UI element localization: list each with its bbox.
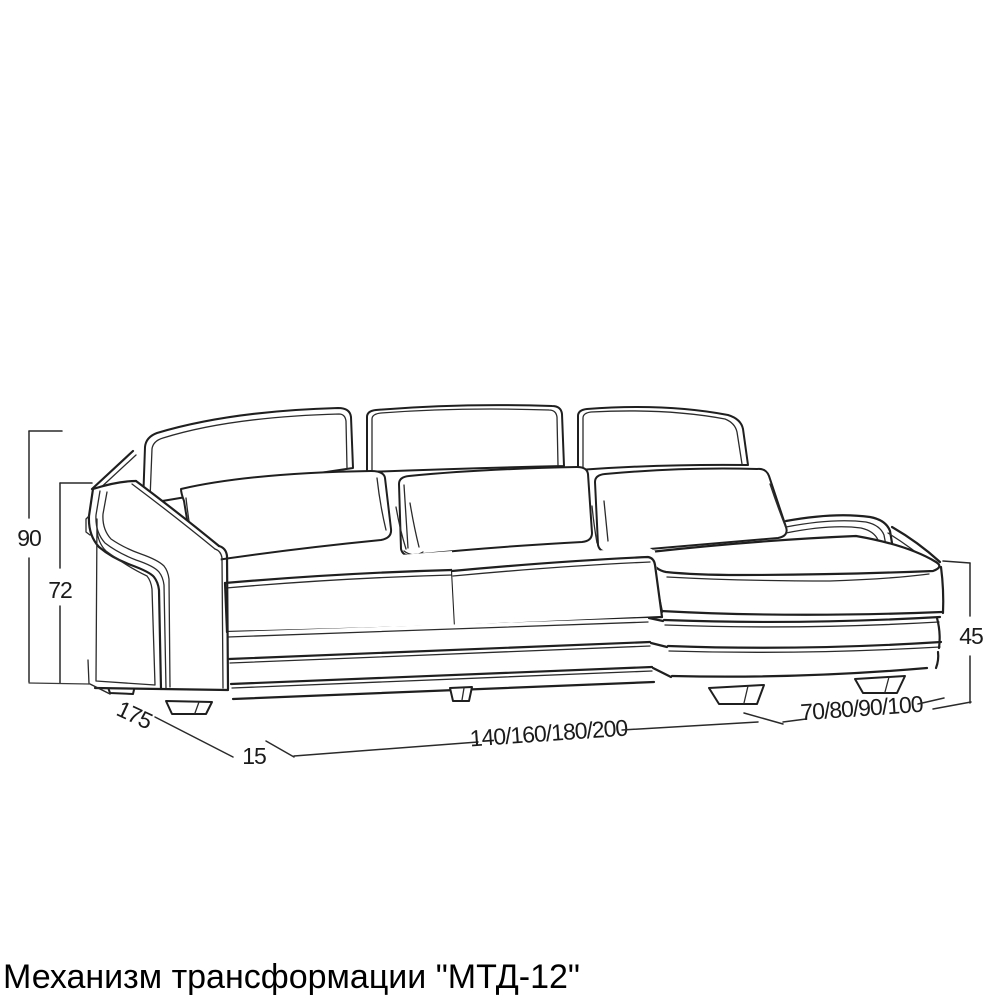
seat-height-value: 72 xyxy=(48,577,72,603)
dimension-seat-height: 72 xyxy=(48,483,92,683)
pillow-middle xyxy=(399,467,592,555)
chaise xyxy=(650,536,944,677)
foot-middle xyxy=(450,687,472,701)
back-cushion-middle xyxy=(367,405,564,472)
dimension-chaise-widths: 70/80/90/100 xyxy=(783,691,971,725)
dimension-seat-widths: 140/160/180/200 xyxy=(294,713,783,756)
dimension-back-height: 90 xyxy=(17,431,62,682)
depth-value: 175 xyxy=(113,695,156,734)
dimension-chaise-height: 45 xyxy=(943,561,983,703)
seat-widths-value: 140/160/180/200 xyxy=(469,715,628,752)
dimension-depth: 175 xyxy=(90,684,233,757)
sofa-illustration: 90 72 175 15 140/160/180/200 xyxy=(0,0,1000,1000)
figure-title: Механизм трансформации "МТД-12" xyxy=(3,960,580,994)
back-cushion-right xyxy=(578,407,748,470)
foot-chaise-right xyxy=(855,676,905,693)
dimension-arm-width: 15 xyxy=(242,741,294,769)
sofa-dimension-diagram: 90 72 175 15 140/160/180/200 xyxy=(0,0,1000,1000)
arm-width-value: 15 xyxy=(242,743,266,769)
chaise-height-value: 45 xyxy=(959,623,983,649)
back-height-value: 90 xyxy=(17,525,41,551)
foot-front-left xyxy=(166,701,212,714)
foot-chaise-left xyxy=(709,685,764,704)
sofa-base xyxy=(227,618,671,699)
pillow-right xyxy=(595,469,787,553)
chaise-widths-value: 70/80/90/100 xyxy=(800,691,924,725)
